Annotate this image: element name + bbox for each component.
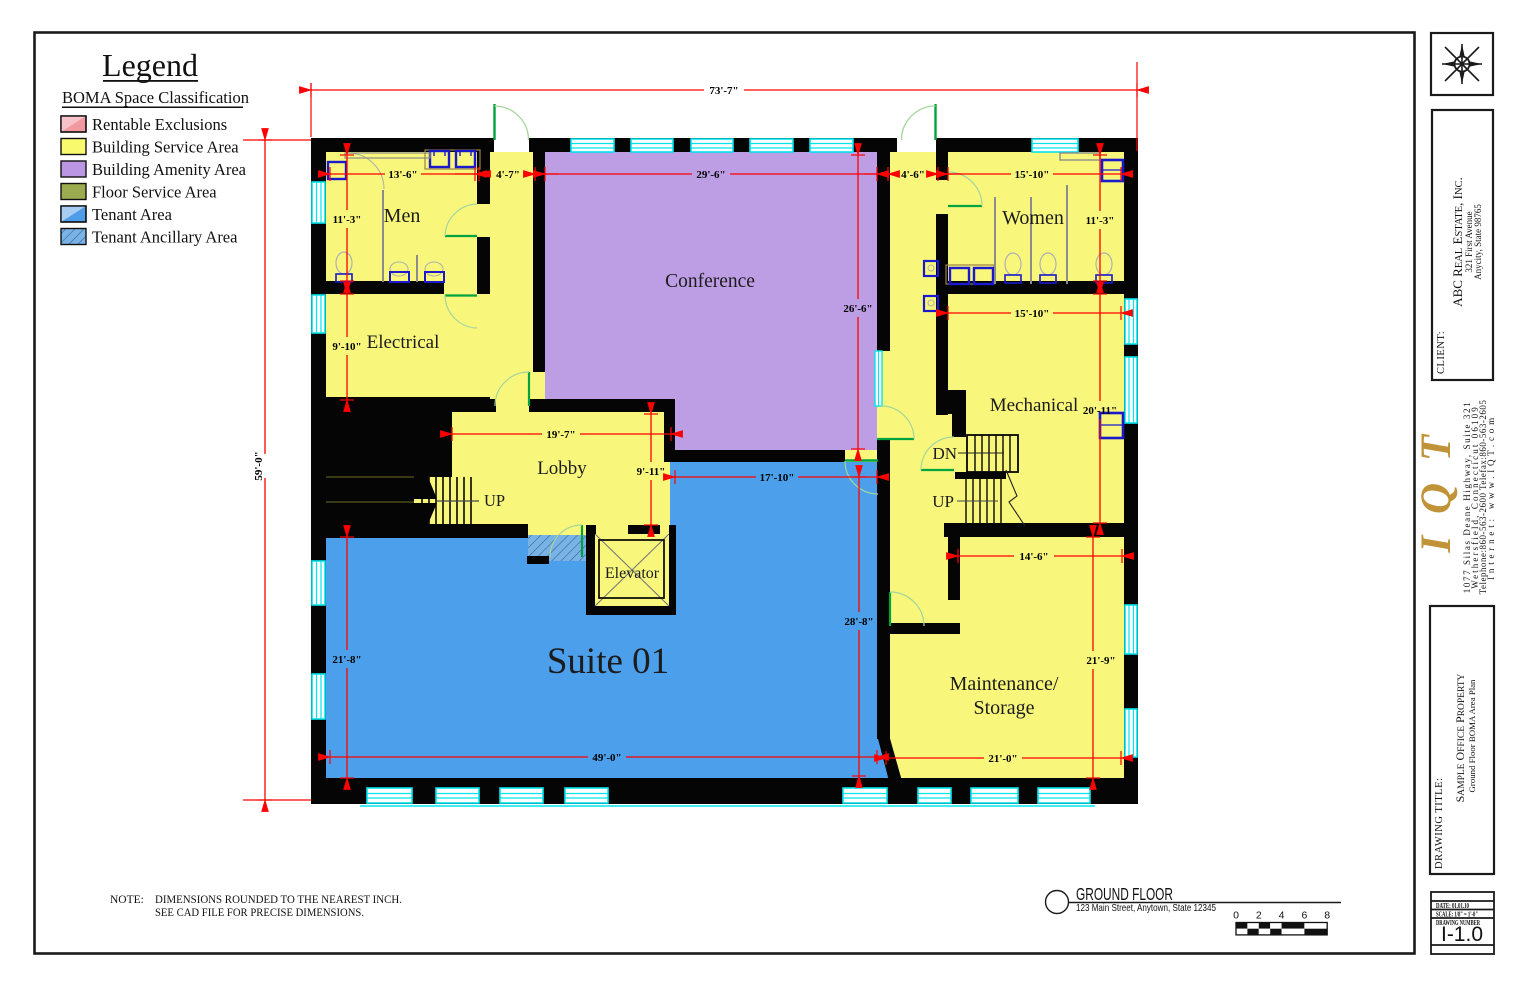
svg-text:26'-6": 26'-6" xyxy=(843,303,872,315)
svg-text:Suite 01: Suite 01 xyxy=(547,641,669,682)
svg-text:4'-7": 4'-7" xyxy=(496,169,520,181)
svg-text:Building Service Area: Building Service Area xyxy=(92,138,239,157)
svg-text:9'-11": 9'-11" xyxy=(637,466,666,478)
svg-text:GROUND FLOOR: GROUND FLOOR xyxy=(1076,884,1173,904)
svg-text:Internet: www.IQT.com: Internet: www.IQT.com xyxy=(1486,414,1496,580)
svg-text:NOTE:: NOTE: xyxy=(110,894,144,906)
svg-text:4'-6": 4'-6" xyxy=(901,169,925,181)
svg-text:I-1.0: I-1.0 xyxy=(1441,923,1483,946)
svg-text:Women: Women xyxy=(1002,207,1064,229)
svg-text:20'-11": 20'-11" xyxy=(1083,405,1117,417)
svg-text:17'-10": 17'-10" xyxy=(760,472,795,484)
svg-text:Storage: Storage xyxy=(973,697,1034,719)
svg-text:Anycity, State 98765: Anycity, State 98765 xyxy=(1473,204,1483,280)
svg-text:123 Main Street, Anytown, Stat: 123 Main Street, Anytown, State 12345 xyxy=(1076,902,1216,914)
svg-text:UP: UP xyxy=(484,491,505,510)
svg-text:I Q T: I Q T xyxy=(1413,429,1460,553)
svg-text:Conference: Conference xyxy=(665,271,755,292)
svg-text:21'-8": 21'-8" xyxy=(332,654,361,666)
svg-text:SCALE: 1/8" = 1'-0": SCALE: 1/8" = 1'-0" xyxy=(1436,912,1478,919)
svg-text:14'-6": 14'-6" xyxy=(1019,551,1048,563)
svg-text:BOMA Space Classification: BOMA Space Classification xyxy=(62,88,249,107)
svg-text:DATE: 01.01.10: DATE: 01.01.10 xyxy=(1436,903,1469,910)
svg-text:Ground Floor BOMA Area Plan: Ground Floor BOMA Area Plan xyxy=(1467,679,1477,792)
svg-text:11'-3": 11'-3" xyxy=(1086,215,1115,227)
svg-text:Rentable Exclusions: Rentable Exclusions xyxy=(92,115,227,134)
svg-text:Tenant Ancillary Area: Tenant Ancillary Area xyxy=(92,228,238,247)
svg-text:Elevator: Elevator xyxy=(605,565,660,582)
svg-text:Lobby: Lobby xyxy=(537,458,587,479)
svg-text:CLIENT:: CLIENT: xyxy=(1436,331,1447,374)
svg-text:13'-6": 13'-6" xyxy=(388,169,417,181)
svg-text:Maintenance/: Maintenance/ xyxy=(950,673,1059,695)
svg-text:21'-9": 21'-9" xyxy=(1086,655,1115,667)
svg-text:SEE CAD FILE FOR PRECISE DIMEN: SEE CAD FILE FOR PRECISE DIMENSIONS. xyxy=(155,907,364,919)
svg-text:Legend: Legend xyxy=(102,47,198,83)
svg-text:28'-8": 28'-8" xyxy=(844,616,873,628)
svg-text:Building Amenity Area: Building Amenity Area xyxy=(92,160,247,179)
svg-text:4: 4 xyxy=(1279,910,1285,922)
svg-text:2: 2 xyxy=(1256,910,1262,922)
svg-text:Tenant Area: Tenant Area xyxy=(92,205,173,224)
svg-text:11'-3": 11'-3" xyxy=(333,214,362,226)
svg-text:19'-7": 19'-7" xyxy=(546,429,575,441)
svg-text:6: 6 xyxy=(1301,910,1307,922)
svg-text:21'-0": 21'-0" xyxy=(988,753,1017,765)
svg-text:Floor Service Area: Floor Service Area xyxy=(92,183,217,202)
svg-text:DN: DN xyxy=(932,444,957,463)
svg-text:73'-7": 73'-7" xyxy=(709,85,738,97)
svg-text:ABC REAL ESTATE, INC.: ABC REAL ESTATE, INC. xyxy=(1450,177,1465,307)
svg-text:DIMENSIONS ROUNDED TO THE NEAR: DIMENSIONS ROUNDED TO THE NEAREST INCH. xyxy=(155,894,402,906)
svg-text:Mechanical: Mechanical xyxy=(990,395,1079,416)
svg-text:15'-10": 15'-10" xyxy=(1015,169,1050,181)
svg-text:15'-10": 15'-10" xyxy=(1015,308,1050,320)
svg-text:0: 0 xyxy=(1233,910,1239,922)
svg-text:Electrical: Electrical xyxy=(367,332,440,353)
svg-text:29'-6": 29'-6" xyxy=(696,169,725,181)
svg-text:49'-0": 49'-0" xyxy=(592,752,621,764)
svg-text:UP: UP xyxy=(932,492,954,511)
svg-text:8: 8 xyxy=(1324,910,1330,922)
svg-text:9'-10": 9'-10" xyxy=(332,341,361,353)
svg-text:59'-0": 59'-0" xyxy=(253,451,265,480)
svg-text:DRAWING TITLE:: DRAWING TITLE: xyxy=(1434,778,1445,869)
svg-text:Men: Men xyxy=(384,205,421,227)
